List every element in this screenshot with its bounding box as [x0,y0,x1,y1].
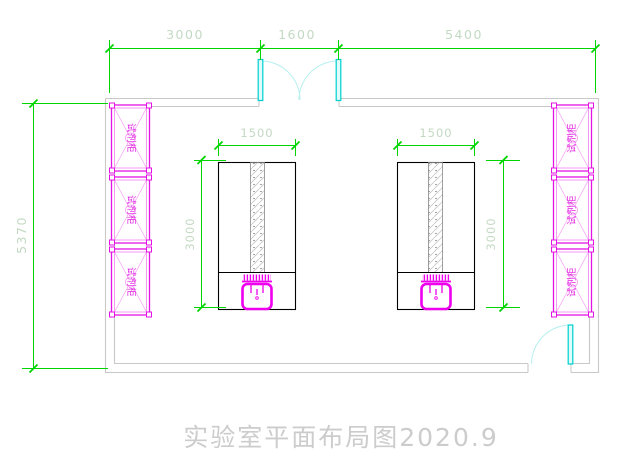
door-leaf-top-right [336,60,341,101]
cabinet-post [552,312,557,317]
floorplan-canvas: 3000 1600 5400 5370 试剂柜 [0,0,619,469]
sink-symbol [242,275,272,310]
bench-width-dim-line [398,139,475,156]
left-dimension-line [22,103,108,369]
dim-label-1600: 1600 [278,27,316,42]
cabinet-post [589,175,594,180]
double-door-swing-arcs [261,61,338,100]
cabinet-post [552,175,557,180]
reagent-cabinet-unit: 试剂柜 [110,247,152,317]
top-dimension-labels: 3000 1600 5400 [166,27,483,42]
dim-label-3000-v: 3000 [484,217,498,250]
cabinet-post [552,247,557,252]
cabinet-post [589,240,594,245]
floorplan-svg: 3000 1600 5400 5370 试剂柜 [0,0,619,469]
bottom-door-swing-arc [532,325,571,364]
reagent-cabinet-unit: 试剂柜 [110,175,152,245]
bench-width-dim-line [219,139,296,156]
right-bench [398,163,475,310]
cabinet-label: 试剂柜 [125,123,137,153]
sink-comb [243,275,271,281]
cabinet-label: 试剂柜 [125,267,137,297]
left-dimension [22,100,108,373]
cabinet-post [110,240,115,245]
sink-comb [422,275,450,281]
cabinet-post [110,247,115,252]
cabinet-post [552,103,557,108]
cabinet-post [147,175,152,180]
wall-outer-outline [106,99,599,373]
cabinet-post [110,103,115,108]
dim-label-3000: 3000 [166,27,204,42]
cabinet-label: 试剂柜 [566,195,578,225]
cabinet-post [110,175,115,180]
cabinet-post [147,247,152,252]
top-dimension [106,40,600,93]
dim-label-3000-v: 3000 [183,217,197,250]
cabinet-post [589,312,594,317]
cabinet-post [147,240,152,245]
top-dimension-line [109,40,596,93]
cabinet-label: 试剂柜 [125,195,137,225]
cabinet-post [147,312,152,317]
reagent-cabinet-unit: 试剂柜 [552,247,594,317]
bench-hatched-strip [429,163,443,273]
dim-label-5370: 5370 [14,216,29,254]
reagent-cabinet-unit: 试剂柜 [552,175,594,245]
reagent-cabinet-unit: 试剂柜 [552,103,594,173]
bench-hatched-strip [251,163,265,273]
cabinet-post [147,103,152,108]
cabinet-label: 试剂柜 [566,123,578,153]
room-walls [106,99,599,373]
drawing-title: 实验室平面布局图2020.9 [183,423,498,452]
cabinet-post [589,168,594,173]
dim-label-1500: 1500 [240,126,273,140]
cabinet-post [110,168,115,173]
cabinet-post [552,168,557,173]
dim-label-5400: 5400 [445,27,483,42]
cabinet-post [110,312,115,317]
dim-label-1500: 1500 [419,126,452,140]
right-cabinet-column: 试剂柜 试剂柜 试剂柜 [552,103,594,317]
cabinet-post [589,247,594,252]
cabinet-post [552,240,557,245]
cabinet-post [589,103,594,108]
cabinet-label: 试剂柜 [566,267,578,297]
reagent-cabinet-unit: 试剂柜 [110,103,152,173]
left-bench [219,163,296,310]
sink-symbol [421,275,451,310]
left-cabinet-column: 试剂柜 试剂柜 试剂柜 [110,103,152,317]
door-leaf-top-left [258,60,263,101]
door-leaf-bottom-right [568,325,573,364]
cabinet-post [147,168,152,173]
